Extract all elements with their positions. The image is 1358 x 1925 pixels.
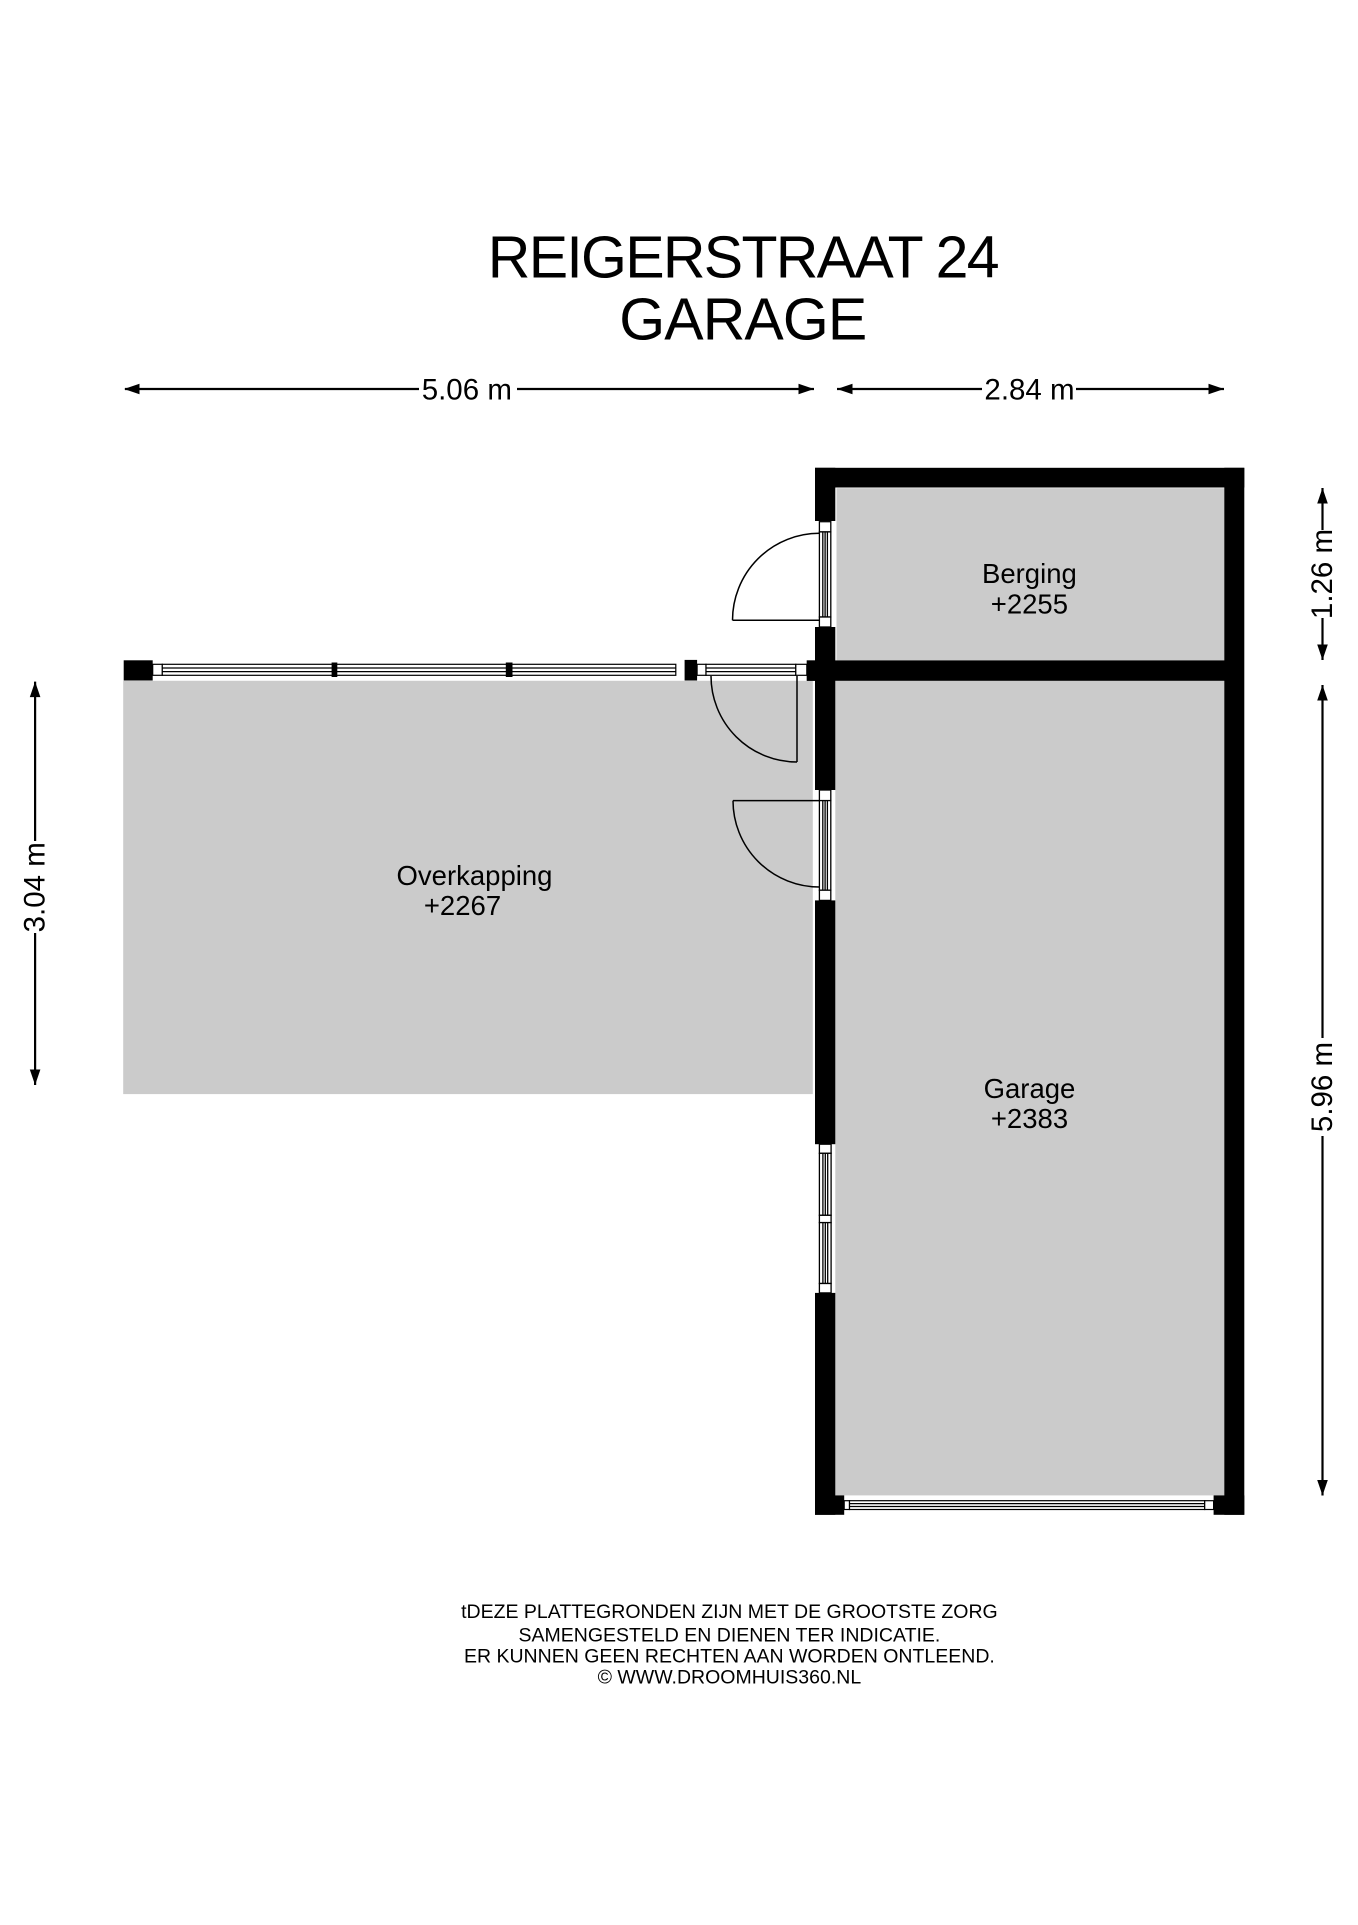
svg-text:Overkapping: Overkapping [397,860,553,891]
svg-text:REIGERSTRAAT 24: REIGERSTRAAT 24 [488,225,999,291]
svg-text:5.96 m: 5.96 m [1306,1042,1339,1132]
svg-text:tDEZE PLATTEGRONDEN ZIJN MET D: tDEZE PLATTEGRONDEN ZIJN MET DE GROOTSTE… [461,1601,998,1623]
svg-text:GARAGE: GARAGE [619,287,866,353]
svg-text:Garage: Garage [984,1073,1076,1104]
svg-text:+2383: +2383 [991,1103,1068,1134]
svg-text:ER KUNNEN GEEN RECHTEN AAN WOR: ER KUNNEN GEEN RECHTEN AAN WORDEN ONTLEE… [464,1646,995,1668]
svg-text:3.04 m: 3.04 m [19,842,52,932]
svg-text:© WWW.DROOMHUIS360.NL: © WWW.DROOMHUIS360.NL [598,1667,862,1689]
svg-text:Berging: Berging [982,558,1077,589]
svg-text:2.84 m: 2.84 m [984,374,1074,407]
svg-text:5.06 m: 5.06 m [422,374,512,407]
svg-text:+2255: +2255 [991,589,1068,620]
svg-text:1.26 m: 1.26 m [1306,529,1339,619]
svg-text:SAMENGESTELD EN DIENEN TER IND: SAMENGESTELD EN DIENEN TER INDICATIE. [518,1624,940,1646]
svg-text:+2267: +2267 [424,890,501,921]
